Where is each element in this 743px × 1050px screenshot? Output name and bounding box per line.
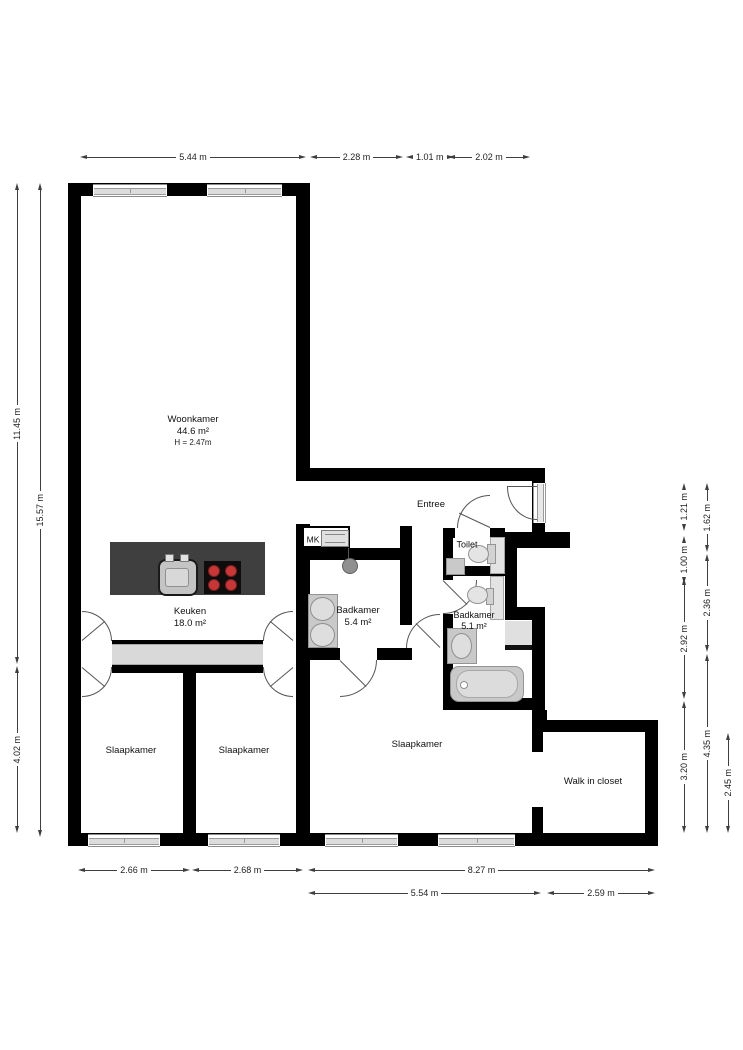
dim-right-1: 1.21 m: [677, 483, 691, 534]
front-door-arc: [507, 487, 537, 520]
window: [208, 834, 280, 847]
washbasin-icon: [451, 633, 472, 659]
dim-bottom-5: 2.59 m: [547, 886, 655, 900]
wall-segment: [68, 183, 81, 846]
shower-icon: [505, 621, 532, 645]
dim-right-5: 1.62 m: [700, 483, 714, 552]
wall-segment: [377, 648, 412, 660]
dim-right-2: 1.00 m: [677, 536, 691, 576]
wall-segment: [505, 548, 517, 610]
wall-segment: [645, 732, 658, 846]
dim-right-3: 2.92 m: [677, 578, 691, 699]
bathtub-icon: [450, 666, 524, 702]
dim-top-4: 2.02 m: [448, 150, 530, 164]
window: [207, 184, 282, 197]
faucet-icon: [165, 554, 174, 562]
dim-right-6: 2.36 m: [700, 554, 714, 652]
shower-edge: [505, 645, 532, 650]
room-label-toilet: Toilet: [456, 539, 477, 550]
room-label-walk-in-closet: Walk in closet: [564, 776, 622, 788]
window: [88, 834, 160, 847]
burner-icon: [208, 565, 220, 577]
room-label-badkamer2: Badkamer 5.1 m²: [453, 610, 494, 633]
dim-right-7: 4.35 m: [700, 654, 714, 833]
toilet-door-arc: [457, 495, 490, 528]
dim-left-1: 11.45 m: [10, 183, 24, 664]
stove-icon: [204, 561, 241, 594]
room-label-entree: Entree: [417, 499, 445, 511]
burner-icon: [208, 579, 220, 591]
floor-plan: Woonkamer 44.6 m² H = 2.47m Keuken 18.0 …: [0, 0, 743, 1050]
window: [93, 184, 167, 197]
wall-segment: [543, 720, 658, 732]
wall-segment: [296, 524, 310, 833]
room-label-slaapkamer2: Slaapkamer: [219, 745, 270, 757]
washbasin-icon: [310, 597, 335, 621]
toilet-bowl-icon: [467, 586, 488, 604]
wall-segment: [532, 620, 545, 703]
dim-bottom-4: 5.54 m: [308, 886, 541, 900]
bathtub-tap-icon: [460, 681, 468, 689]
dim-top-2: 2.28 m: [310, 150, 403, 164]
shower-head-icon: [342, 558, 358, 574]
dim-bottom-2: 2.68 m: [192, 863, 303, 877]
wall-segment: [532, 732, 543, 752]
washbasin-icon: [310, 623, 335, 647]
toilet-sink-icon: [446, 558, 465, 575]
meter-fixture-icon: [321, 530, 349, 547]
wall-segment: [296, 648, 340, 660]
dim-top-3: 1.01 m: [406, 150, 445, 164]
sink-basin: [165, 568, 189, 587]
corridor-strip: [112, 644, 263, 665]
wall-segment: [505, 607, 545, 620]
dim-left-2: 15.57 m: [33, 183, 47, 837]
room-label-keuken: Keuken 18.0 m²: [174, 606, 206, 630]
dim-left-3: 4.02 m: [10, 666, 24, 833]
wall-segment: [183, 663, 196, 833]
room-label-mk: MK: [307, 535, 320, 546]
dim-bottom-1: 2.66 m: [78, 863, 190, 877]
room-label-slaapkamer1: Slaapkamer: [106, 745, 157, 757]
room-label-slaapkamer3: Slaapkamer: [392, 739, 443, 751]
window: [438, 834, 515, 847]
faucet-icon: [180, 554, 189, 562]
dim-bottom-3: 8.27 m: [308, 863, 655, 877]
wall-segment: [400, 526, 412, 625]
wall-segment: [296, 468, 545, 481]
kitchen-sink-icon: [158, 559, 198, 596]
front-door-leaf: [507, 486, 537, 487]
dim-top-1: 5.44 m: [80, 150, 306, 164]
wall-segment: [296, 183, 310, 481]
room-label-woonkamer: Woonkamer 44.6 m² H = 2.47m: [167, 414, 218, 448]
burner-icon: [225, 565, 237, 577]
dim-right-8: 2.45 m: [721, 733, 735, 833]
window: [325, 834, 398, 847]
wall-segment: [505, 532, 570, 548]
room-label-badkamer1: Badkamer 5.4 m²: [336, 605, 379, 629]
burner-icon: [225, 579, 237, 591]
dim-right-4: 3.20 m: [677, 701, 691, 833]
